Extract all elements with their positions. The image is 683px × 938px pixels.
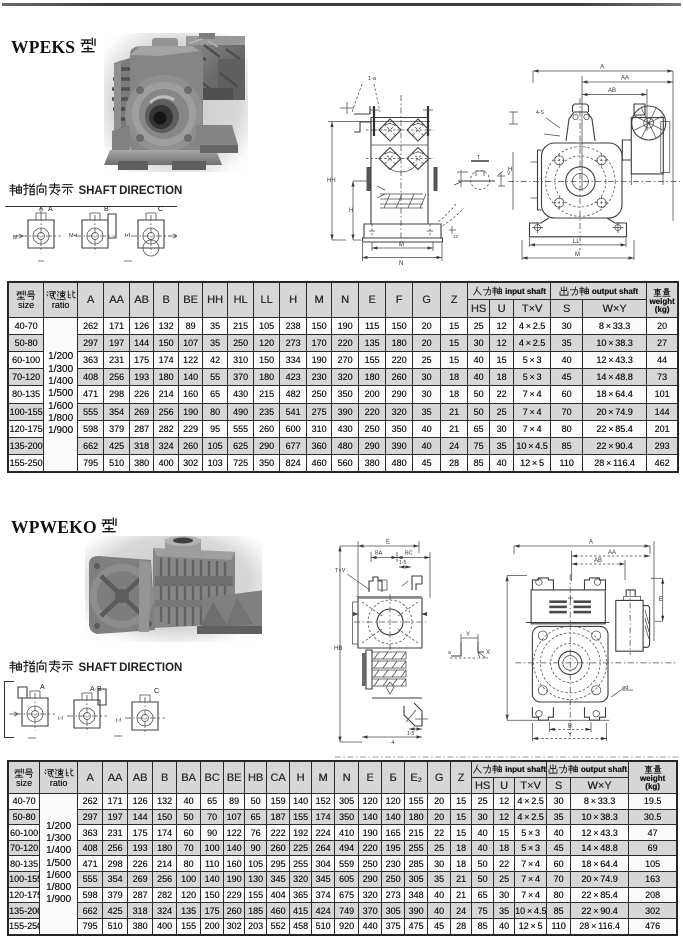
svg-text:AB: AB xyxy=(594,558,602,564)
svg-text:A: A xyxy=(48,206,53,213)
svg-text:1-5: 1-5 xyxy=(399,560,406,566)
svg-text:H: H xyxy=(349,208,353,214)
svg-text:⌀d: ⌀d xyxy=(622,685,628,691)
svg-text:t·f: t·f xyxy=(116,718,121,724)
svg-text:B: B xyxy=(568,724,572,730)
svg-text:T: T xyxy=(477,155,481,161)
svg-text:AA: AA xyxy=(621,76,629,82)
svg-text:X: X xyxy=(486,650,490,656)
svg-text:-4: -4 xyxy=(390,740,395,746)
svg-text:M: M xyxy=(13,235,18,241)
svg-text:HH: HH xyxy=(327,178,336,184)
svg-text:12: 12 xyxy=(453,234,459,239)
svg-text:BA: BA xyxy=(375,551,383,557)
svg-text:t·f: t·f xyxy=(58,716,63,722)
svg-text:C: C xyxy=(158,206,163,213)
svg-text:M•t: M•t xyxy=(69,233,78,239)
svg-text:LL: LL xyxy=(573,239,580,245)
svg-text:B: B xyxy=(104,206,109,213)
svg-text:BC: BC xyxy=(405,551,413,557)
svg-text:4-S: 4-S xyxy=(536,110,544,116)
svg-text:A: A xyxy=(589,540,593,546)
svg-text:AB: AB xyxy=(608,88,616,94)
svg-text:A: A xyxy=(40,684,45,691)
svg-text:AA: AA xyxy=(608,550,616,556)
svg-text:M: M xyxy=(575,252,580,258)
svg-text:Y: Y xyxy=(568,733,572,739)
svg-text:a: a xyxy=(448,650,451,656)
svg-text:N: N xyxy=(399,261,403,267)
svg-text:H: H xyxy=(508,167,512,173)
svg-text:E: E xyxy=(386,540,390,546)
svg-text:E: E xyxy=(659,597,663,603)
svg-text:M: M xyxy=(399,242,404,248)
svg-text:1-a: 1-a xyxy=(368,76,377,82)
svg-text:1-5: 1-5 xyxy=(407,731,414,737)
svg-text:HB: HB xyxy=(334,646,342,652)
svg-text:C: C xyxy=(154,688,159,695)
svg-text:A: A xyxy=(600,64,605,71)
svg-text:t•f: t•f xyxy=(125,233,130,239)
svg-text:Y: Y xyxy=(466,632,470,638)
